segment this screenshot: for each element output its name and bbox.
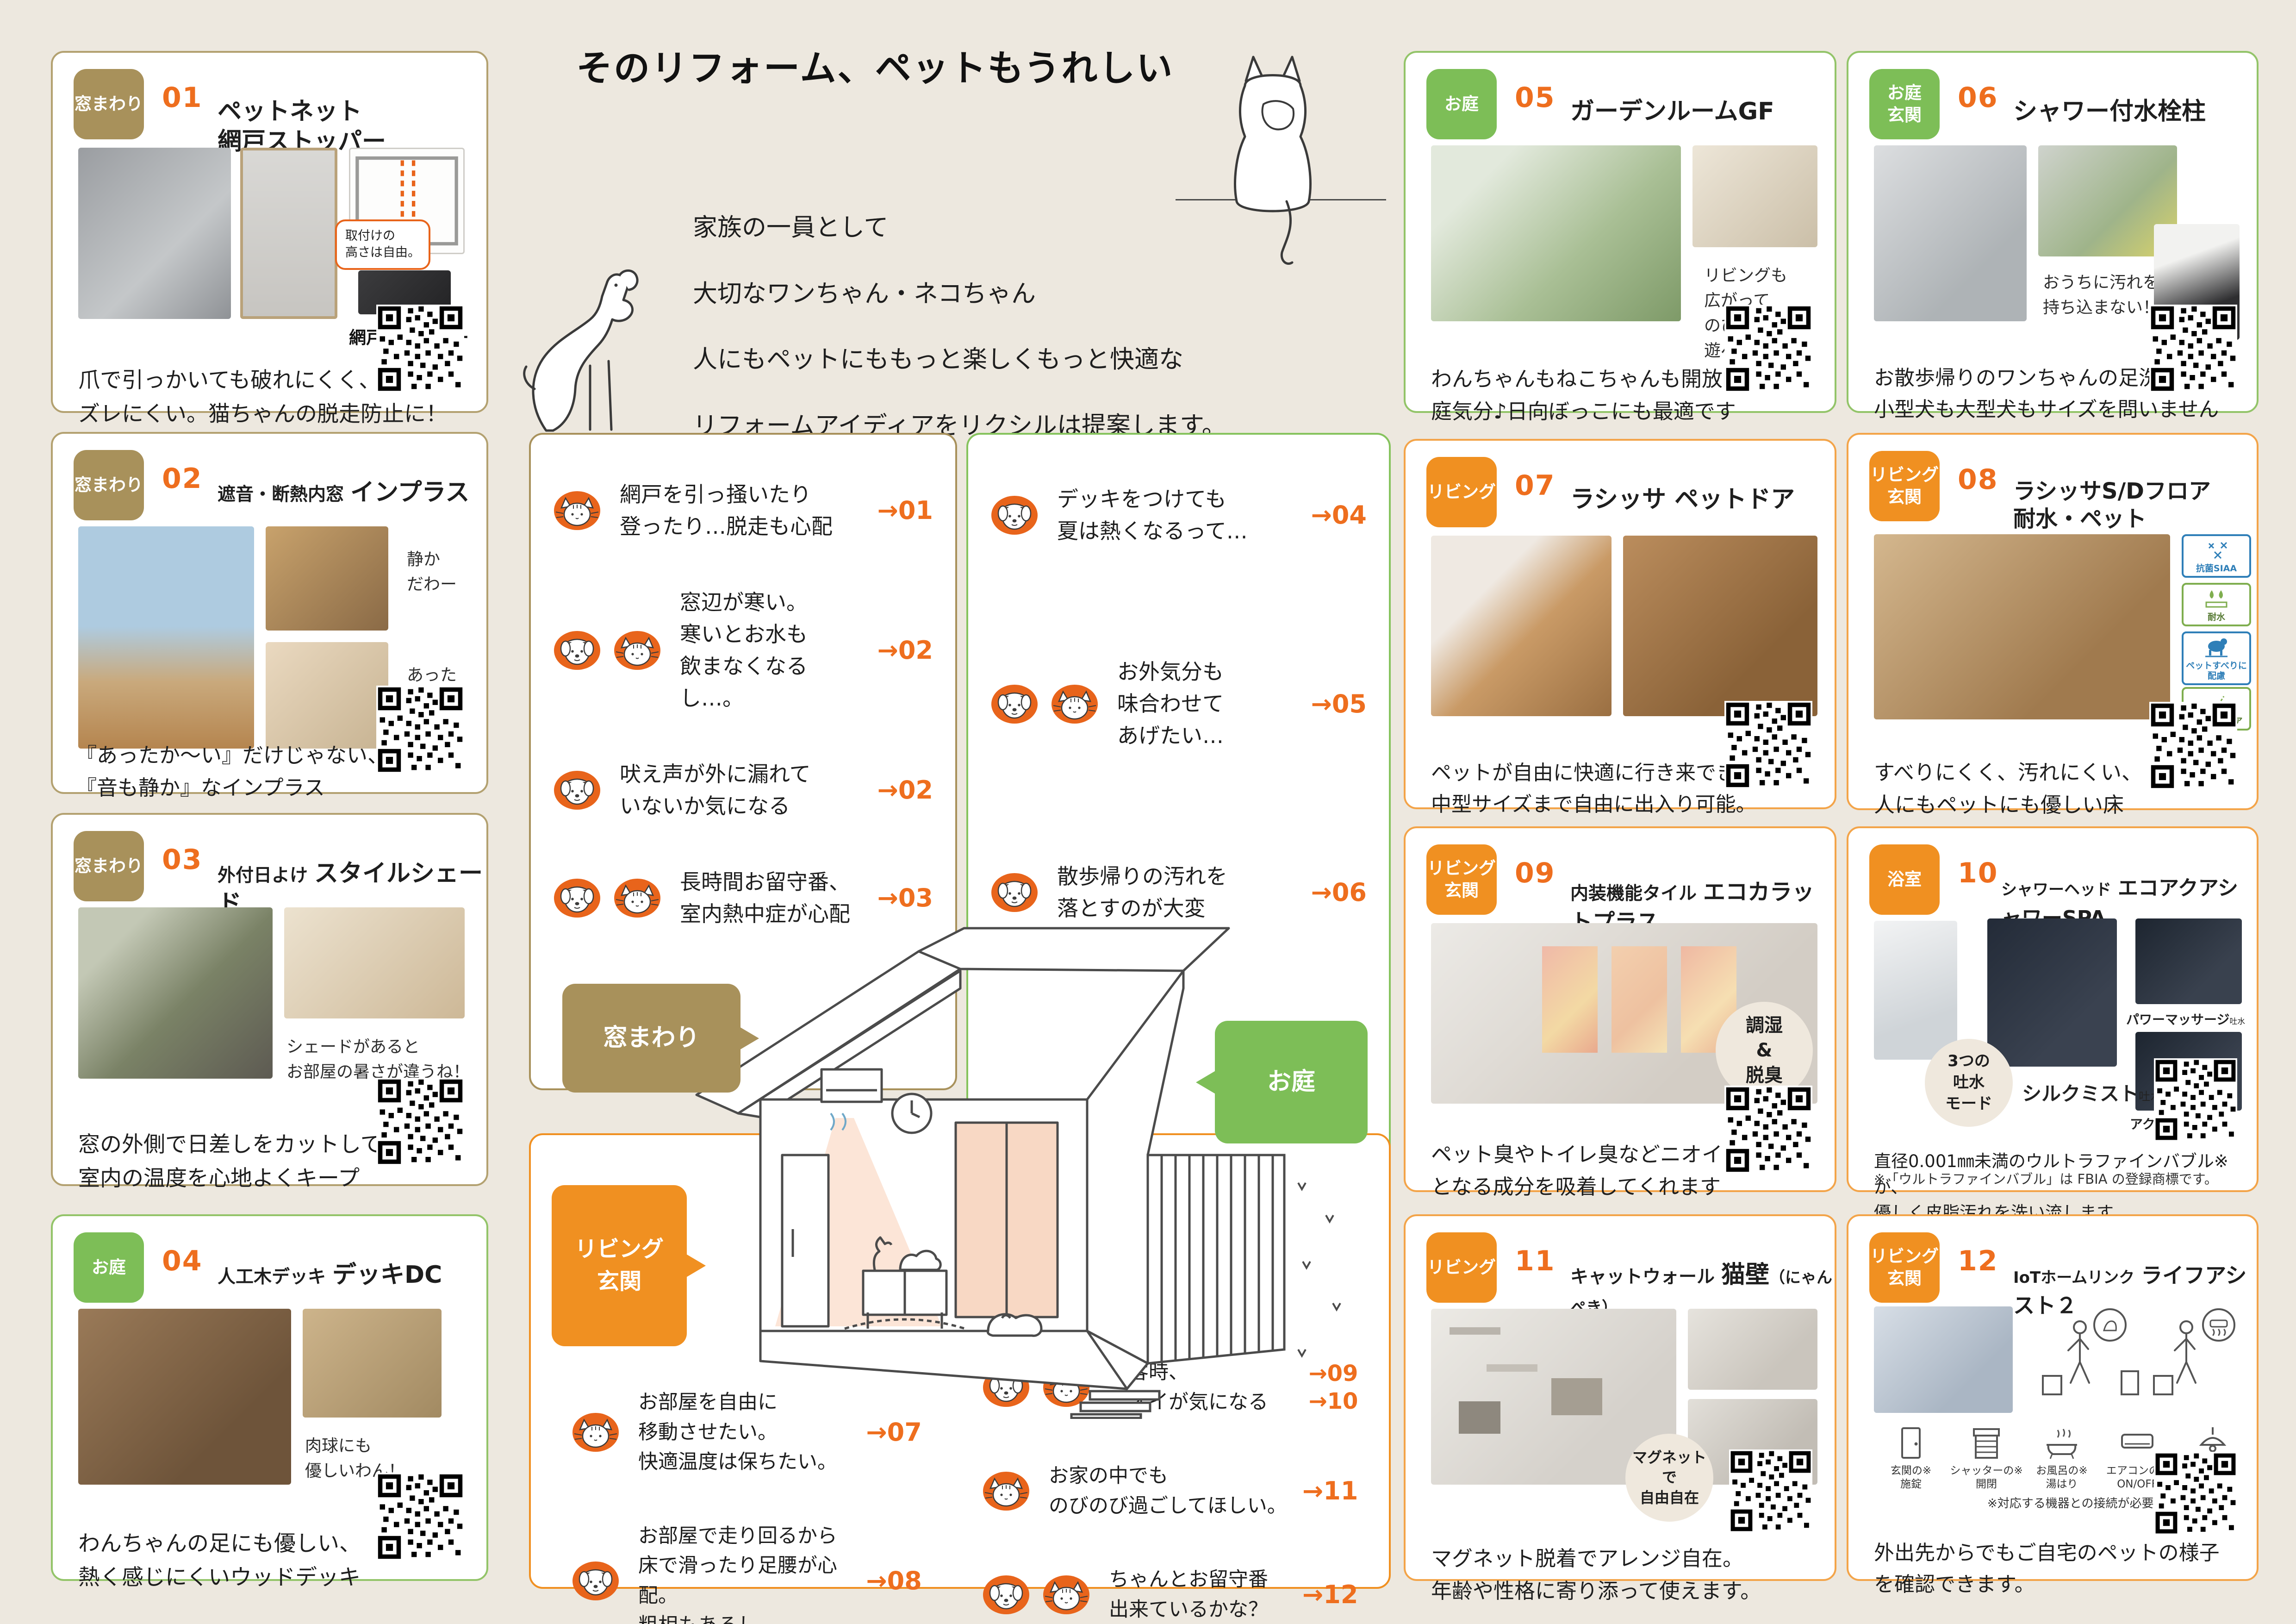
photo-cat-sleeping bbox=[266, 642, 388, 749]
product-number: 02 bbox=[162, 462, 203, 495]
bubble-living: リビング 玄関 bbox=[552, 1185, 687, 1346]
dog-icon bbox=[990, 684, 1039, 725]
cat-icon bbox=[613, 630, 661, 671]
concern-item: 網戸を引っ掻いたり 登ったり…脱走も心配 →01 bbox=[531, 479, 955, 543]
cert-icon-waterproof: 耐水 bbox=[2182, 583, 2251, 626]
house-illustration bbox=[683, 896, 1368, 1419]
product-name: ガーデンルームGF bbox=[1570, 98, 1774, 125]
cat-step bbox=[1487, 1364, 1537, 1372]
dog-icon bbox=[982, 1574, 1030, 1615]
handwritten-note: おうちに汚れを 持ち込まない！ bbox=[2043, 270, 2159, 320]
cat-icon bbox=[572, 1412, 620, 1453]
cat-icon bbox=[1042, 1574, 1090, 1615]
product-caption: 外出先からでもご自宅のペットの様子 を確認できます。 bbox=[1874, 1537, 2220, 1600]
category-badge: お庭 bbox=[74, 1232, 144, 1303]
product-number: 04 bbox=[162, 1245, 203, 1277]
cat-box bbox=[1551, 1378, 1602, 1415]
cat-step bbox=[1450, 1327, 1500, 1335]
qr-code bbox=[2154, 1452, 2237, 1535]
photo-dog-sleeping bbox=[266, 526, 388, 631]
handwritten-note: シェードがあると お部屋の暑さが違うね！ bbox=[286, 1035, 470, 1085]
concern-text: ちゃんとお留守番 出来ているかな？ bbox=[1109, 1565, 1290, 1624]
iot-label: シャッターの※ 開閉 bbox=[1949, 1464, 2023, 1491]
qr-code bbox=[1724, 701, 1812, 789]
photo-smartphone-app bbox=[1874, 1306, 2013, 1413]
product-card-01: 窓まわり 01 ペットネット 網戸ストッパー 取付けの 高さは自由。 網戸ストッ… bbox=[51, 51, 488, 413]
concern-link: →01 bbox=[877, 495, 933, 526]
product-subtitle: キャットウォール bbox=[1570, 1267, 1715, 1287]
category-badge: リビング 玄関 bbox=[1426, 844, 1497, 915]
product-name: 猫壁 bbox=[1721, 1261, 1769, 1289]
concern-item: 窓辺が寒い。 寒いとお水も 飲まなくなるし…。 →02 bbox=[531, 587, 955, 714]
product-title: シャワー付水栓柱 bbox=[2013, 97, 2206, 127]
trademark-note: ※「ウルトラファインバブル」は FBIA の登録商標です。 bbox=[1874, 1168, 2218, 1188]
product-subtitle: 遮音・断熱内窓 bbox=[218, 484, 344, 505]
product-number: 09 bbox=[1515, 857, 1556, 889]
concern-text: 吠え声が外に漏れて いないか気になる bbox=[620, 758, 865, 822]
height-callout: 取付けの 高さは自由。 bbox=[335, 219, 430, 270]
concern-text: お外気分も 味合わせて あげたい… bbox=[1117, 656, 1299, 752]
qr-code bbox=[376, 686, 464, 774]
art-panel bbox=[1612, 946, 1667, 1053]
feature-circle-badge: 3つの 吐水 モード bbox=[1925, 1039, 2013, 1127]
product-title: ラシッサS/Dフロア 耐水・ペット bbox=[2013, 477, 2211, 533]
photo-water-tap-pole bbox=[1874, 145, 2027, 321]
concern-item: お部屋で走り回るから 床で滑ったり足腰が心配。 粗相もあるし… →08 bbox=[549, 1521, 944, 1624]
concern-text: 窓辺が寒い。 寒いとお水も 飲まなくなるし…。 bbox=[680, 587, 865, 714]
bubble-garden: お庭 bbox=[1215, 1021, 1368, 1143]
category-badge: 窓まわり bbox=[74, 450, 144, 520]
mode-label-power-massage: パワーマッサージ吐水 bbox=[2126, 1010, 2245, 1028]
product-card-04: お庭 04 人工木デッキデッキDC 肉球にも 優しいわん！ わんちゃんの足にも優… bbox=[51, 1214, 488, 1581]
product-name: デッキDC bbox=[332, 1261, 442, 1289]
product-title: 人工木デッキデッキDC bbox=[218, 1260, 442, 1290]
iot-feature-shutter: シャッターの※ 開閉 bbox=[1949, 1424, 2023, 1491]
cert-icon-antibacterial: 抗菌SIAA bbox=[2182, 534, 2251, 578]
product-caption: すべりにくく、汚れにくい、 人にもペットにも優しい床 bbox=[1874, 756, 2142, 821]
product-number: 10 bbox=[1958, 857, 1998, 889]
product-subtitle: IoTホームリンク bbox=[2013, 1268, 2134, 1287]
product-card-09: リビング 玄関 09 内装機能タイルエコカラットプラス 調湿 & 脱臭 ペット臭… bbox=[1404, 826, 1836, 1192]
concern-link: →02 bbox=[877, 775, 933, 806]
product-name: ラシッサ ペットドア bbox=[1570, 486, 1795, 513]
product-card-02: 窓まわり 02 遮音・断熱内窓インプラス 静か だわー あった かーい 『あった… bbox=[51, 432, 488, 794]
iot-label: お風呂の※ 湯はり bbox=[2025, 1464, 2099, 1491]
product-name: インプラス bbox=[350, 479, 469, 506]
concern-text: デッキをつけても 夏は熱くなるって… bbox=[1057, 483, 1299, 547]
qr-code bbox=[2149, 305, 2237, 393]
product-card-11: リビング 11 キャットウォール猫壁（にゃんぺき） マグネット で 自由自在 マ… bbox=[1404, 1214, 1836, 1581]
category-badge: リビング 玄関 bbox=[1869, 451, 1940, 521]
category-badge: リビング bbox=[1426, 457, 1497, 527]
product-card-05: お庭 05 ガーデンルームGF リビングも 広がって のびのび 遊べます。 わん… bbox=[1404, 51, 1836, 413]
product-number: 12 bbox=[1958, 1245, 1998, 1277]
concern-link: →12 bbox=[1302, 1579, 1358, 1611]
remote-control-illustration bbox=[2024, 1306, 2246, 1413]
cat-icon bbox=[553, 490, 601, 531]
product-card-03: 窓まわり 03 外付日よけスタイルシェード シェードがあると お部屋の暑さが違う… bbox=[51, 813, 488, 1186]
feature-circle-badge: 調湿 & 脱臭 bbox=[1716, 1002, 1813, 1099]
category-badge: リビング bbox=[1426, 1232, 1497, 1303]
qr-code bbox=[2154, 1058, 2237, 1142]
photo-floor-child-dog bbox=[1874, 534, 2170, 719]
concern-item: 吠え声が外に漏れて いないか気になる →02 bbox=[531, 758, 955, 822]
product-card-08: リビング 玄関 08 ラシッサS/Dフロア 耐水・ペット 抗菌SIAA 耐水 ペ… bbox=[1847, 433, 2259, 810]
concern-item: お外気分も 味合わせて あげたい… →05 bbox=[968, 656, 1389, 752]
qr-code bbox=[376, 1473, 464, 1561]
dog-icon bbox=[572, 1561, 620, 1601]
cert-icon-pet-slip: ペットすべりに 配慮 bbox=[2182, 631, 2251, 685]
photo-cat-through-door bbox=[1623, 536, 1817, 716]
category-badge: 窓まわり bbox=[74, 69, 144, 139]
category-badge: お庭 玄関 bbox=[1869, 69, 1940, 139]
page-title: そのリフォーム、ペットもうれしい bbox=[576, 39, 1174, 91]
qr-code bbox=[1724, 1086, 1812, 1174]
qr-code bbox=[1724, 305, 1812, 393]
dog-icon bbox=[990, 495, 1039, 536]
dog-illustration bbox=[521, 250, 664, 435]
product-number: 06 bbox=[1958, 81, 1998, 114]
concern-link: →04 bbox=[1311, 500, 1367, 531]
product-name: シャワー付水栓柱 bbox=[2013, 98, 2206, 125]
iot-feature-door-lock: 玄関の※ 施錠 bbox=[1874, 1424, 1948, 1491]
mode-label-silk-mist: シルクミスト吐水 bbox=[2022, 1078, 2162, 1106]
product-number: 08 bbox=[1958, 463, 1998, 496]
photo-style-shade-exterior bbox=[78, 907, 273, 1079]
product-caption: わんちゃんの足にも優しい、 熱く感じにくいウッドデッキ bbox=[78, 1527, 361, 1595]
photo-deck-closeup-dog bbox=[303, 1309, 442, 1418]
qr-code bbox=[2149, 702, 2237, 790]
iot-feature-bath: お風呂の※ 湯はり bbox=[2025, 1424, 2099, 1491]
product-number: 11 bbox=[1515, 1245, 1556, 1277]
concern-text: お家の中でも のびのび過ごしてほしい。 bbox=[1049, 1461, 1290, 1521]
category-badge: 浴室 bbox=[1869, 844, 1940, 915]
cat-box bbox=[1459, 1401, 1500, 1434]
product-card-10: 浴室 10 シャワーヘッドエコアクアシャワーSPA 3つの 吐水 モード シルク… bbox=[1847, 826, 2259, 1192]
photo-pet-door bbox=[1431, 536, 1612, 716]
concern-link: →08 bbox=[866, 1565, 921, 1597]
art-panel bbox=[1542, 946, 1598, 1053]
concern-item: ちゃんとお留守番 出来ているかな？ →12 bbox=[960, 1565, 1380, 1624]
photo-screen-door bbox=[240, 148, 337, 319]
product-title: ラシッサ ペットドア bbox=[1570, 485, 1795, 515]
product-number: 03 bbox=[162, 843, 203, 876]
product-title: 遮音・断熱内窓インプラス bbox=[218, 478, 469, 508]
product-subtitle: 人工木デッキ bbox=[218, 1267, 326, 1287]
concern-text: 網戸を引っ掻いたり 登ったり…脱走も心配 bbox=[620, 479, 865, 543]
product-card-12: リビング 玄関 12 IoTホームリンクライフアシスト２ 玄関の※ 施錠 シャッ… bbox=[1847, 1214, 2259, 1581]
cat-illustration bbox=[1217, 49, 1328, 271]
product-caption: 窓の外側で日差しをカットして、 室内の温度を心地よくキープ bbox=[78, 1128, 403, 1196]
pet-reform-flyer: そのリフォーム、ペットもうれしい 家族の一員として 大切なワンちゃん・ネコちゃん… bbox=[0, 0, 2296, 1624]
bubble-windows: 窓まわり bbox=[562, 984, 740, 1093]
concern-link: →05 bbox=[1311, 688, 1367, 720]
product-number: 01 bbox=[162, 81, 203, 114]
feature-circle-badge: マグネット で 自由自在 bbox=[1625, 1434, 1713, 1522]
handwritten-note: 静か だわー bbox=[407, 547, 457, 597]
photo-inner-window bbox=[78, 526, 254, 749]
photo-shade-interior-dog bbox=[284, 907, 465, 1018]
photo-garden-room bbox=[1431, 145, 1681, 321]
photo-showerhead-product bbox=[1874, 921, 1957, 1060]
cert-label: 抗菌SIAA bbox=[2184, 564, 2248, 574]
concern-text: お部屋で走り回るから 床で滑ったり足腰が心配。 粗相もあるし… bbox=[638, 1521, 854, 1624]
product-number: 07 bbox=[1515, 469, 1556, 502]
product-subtitle: シャワーヘッド bbox=[2001, 881, 2111, 899]
product-caption: 『あったか〜い』だけじゃない、 『音も静か』なインプラス bbox=[76, 739, 388, 804]
qr-code bbox=[376, 1078, 464, 1166]
category-badge: お庭 bbox=[1426, 69, 1497, 139]
photo-garden-room-interior bbox=[1692, 145, 1817, 247]
product-caption: マグネット脱着でアレンジ自在。 年齢や性格に寄り添って使えます。 bbox=[1431, 1543, 1761, 1607]
dog-icon bbox=[553, 630, 601, 671]
concern-item: デッキをつけても 夏は熱くなるって… →04 bbox=[968, 483, 1389, 547]
category-badge: 窓まわり bbox=[74, 831, 144, 901]
intro-text-1: 家族の一員として 大切なワンちゃん・ネコちゃん bbox=[693, 194, 1036, 327]
product-subtitle: 内装機能タイル bbox=[1570, 883, 1697, 904]
category-badge: リビング 玄関 bbox=[1869, 1232, 1940, 1303]
dog-icon bbox=[553, 770, 601, 811]
concern-link: →07 bbox=[866, 1417, 921, 1448]
dog-icon bbox=[553, 878, 601, 918]
product-title: ガーデンルームGF bbox=[1570, 97, 1774, 127]
product-card-06: お庭 玄関 06 シャワー付水栓柱 おうちに汚れを 持ち込まない！ お散歩帰りの… bbox=[1847, 51, 2259, 413]
photo-magnet-attach bbox=[1688, 1309, 1817, 1390]
product-card-07: リビング 07 ラシッサ ペットドア ペットが自由に快適に行き来できます。 中型… bbox=[1404, 439, 1836, 809]
cat-icon bbox=[1051, 684, 1099, 725]
qr-code bbox=[376, 305, 464, 393]
photo-power-massage bbox=[2135, 918, 2242, 1004]
product-number: 05 bbox=[1515, 81, 1556, 114]
iot-label: 玄関の※ 施錠 bbox=[1874, 1464, 1948, 1491]
photo-pets-at-screen bbox=[78, 148, 231, 319]
cat-icon bbox=[613, 878, 661, 918]
photo-deck-top-view bbox=[78, 1309, 291, 1485]
cert-label: 耐水 bbox=[2184, 612, 2248, 623]
concern-link: →11 bbox=[1302, 1475, 1358, 1507]
qr-code bbox=[1729, 1449, 1812, 1533]
concern-link: →02 bbox=[877, 635, 933, 666]
product-subtitle: 外付日よけ bbox=[218, 865, 308, 886]
concern-item: お家の中でも のびのび過ごしてほしい。 →11 bbox=[960, 1461, 1380, 1521]
photo-silk-mist bbox=[1987, 918, 2117, 1067]
cert-label: ペットすべりに 配慮 bbox=[2184, 661, 2248, 681]
cat-icon bbox=[982, 1471, 1030, 1512]
